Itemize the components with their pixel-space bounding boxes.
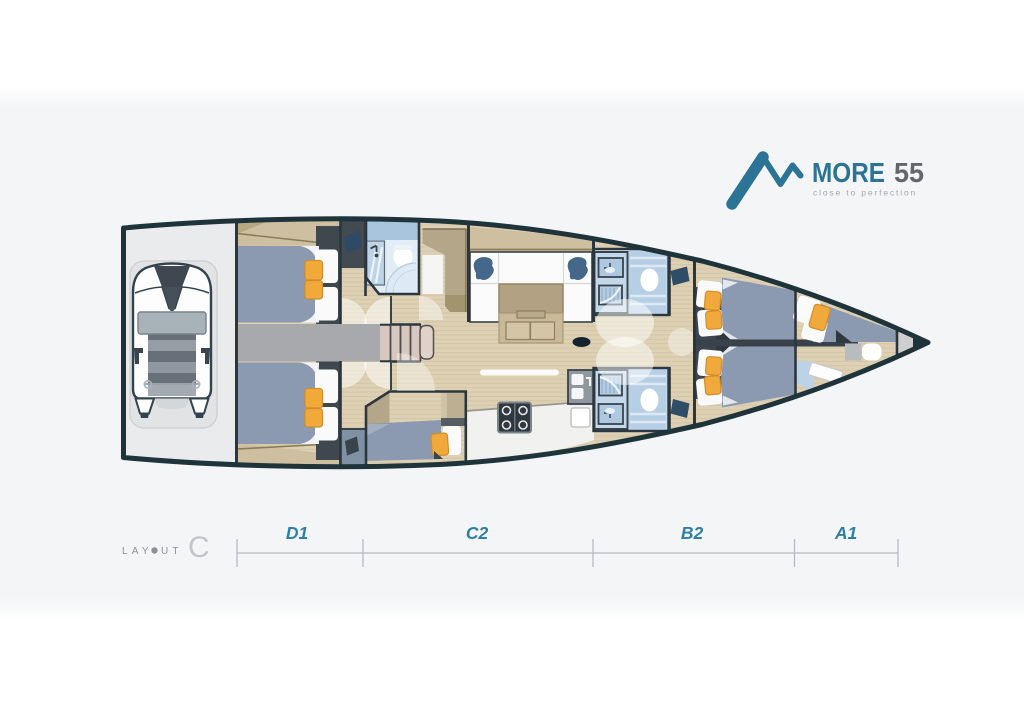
svg-text:55: 55 [894, 157, 924, 188]
svg-text:UT: UT [161, 546, 183, 557]
svg-text:A1: A1 [834, 523, 857, 543]
svg-text:C: C [188, 531, 210, 564]
svg-text:B2: B2 [681, 523, 704, 543]
svg-text:LAY: LAY [122, 546, 153, 557]
svg-text:D1: D1 [286, 523, 308, 543]
svg-text:MORE: MORE [812, 157, 885, 188]
svg-text:C2: C2 [466, 523, 489, 543]
svg-text:close to perfection: close to perfection [813, 188, 917, 198]
